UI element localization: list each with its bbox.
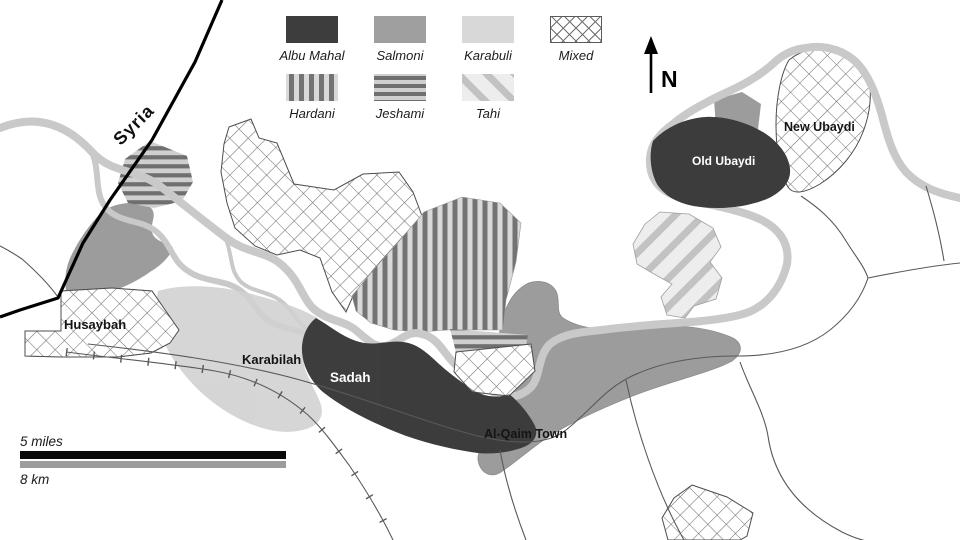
tribal-map: Syria Husaybah Karabilah Sadah Al-Qaim T… bbox=[0, 0, 960, 540]
legend-label-tahi: Tahi bbox=[476, 106, 500, 121]
label-karabilah: Karabilah bbox=[242, 352, 301, 367]
legend-swatch-hardani bbox=[286, 74, 338, 101]
legend-label-mixed: Mixed bbox=[559, 48, 594, 63]
legend-swatch-mixed bbox=[550, 16, 602, 43]
legend-swatch-salmoni bbox=[374, 16, 426, 43]
label-sadah: Sadah bbox=[330, 370, 371, 385]
legend-item-salmoni: Salmoni bbox=[356, 16, 444, 63]
label-al-qaim-town: Al-Qaim Town bbox=[484, 427, 567, 441]
scale-km-label: 8 km bbox=[20, 472, 49, 487]
legend-label-albu-mahal: Albu Mahal bbox=[279, 48, 344, 63]
scale-bar-miles bbox=[20, 451, 286, 459]
legend-item-hardani: Hardani bbox=[268, 74, 356, 121]
scale-bar-km bbox=[20, 461, 286, 468]
map-legend: Albu Mahal Salmoni Karabuli Mixed Hardan… bbox=[268, 16, 628, 121]
legend-item-karabuli: Karabuli bbox=[444, 16, 532, 63]
legend-swatch-jeshami bbox=[374, 74, 426, 101]
legend-item-tahi: Tahi bbox=[444, 74, 532, 121]
label-old-ubaydi: Old Ubaydi bbox=[692, 154, 755, 168]
legend-label-hardani: Hardani bbox=[289, 106, 335, 121]
legend-row-2: Hardani Jeshami Tahi bbox=[268, 74, 628, 121]
legend-label-jeshami: Jeshami bbox=[376, 106, 424, 121]
scale-miles-label: 5 miles bbox=[20, 434, 63, 449]
north-arrow-label: N bbox=[661, 66, 678, 92]
legend-item-jeshami: Jeshami bbox=[356, 74, 444, 121]
legend-swatch-albu-mahal bbox=[286, 16, 338, 43]
legend-item-mixed: Mixed bbox=[532, 16, 620, 63]
legend-label-salmoni: Salmoni bbox=[377, 48, 424, 63]
legend-swatch-tahi bbox=[462, 74, 514, 101]
legend-row-1: Albu Mahal Salmoni Karabuli Mixed bbox=[268, 16, 628, 63]
legend-swatch-karabuli bbox=[462, 16, 514, 43]
legend-item-albu-mahal: Albu Mahal bbox=[268, 16, 356, 63]
legend-label-karabuli: Karabuli bbox=[464, 48, 512, 63]
label-new-ubaydi: New Ubaydi bbox=[784, 120, 855, 134]
label-husaybah: Husaybah bbox=[64, 317, 126, 332]
